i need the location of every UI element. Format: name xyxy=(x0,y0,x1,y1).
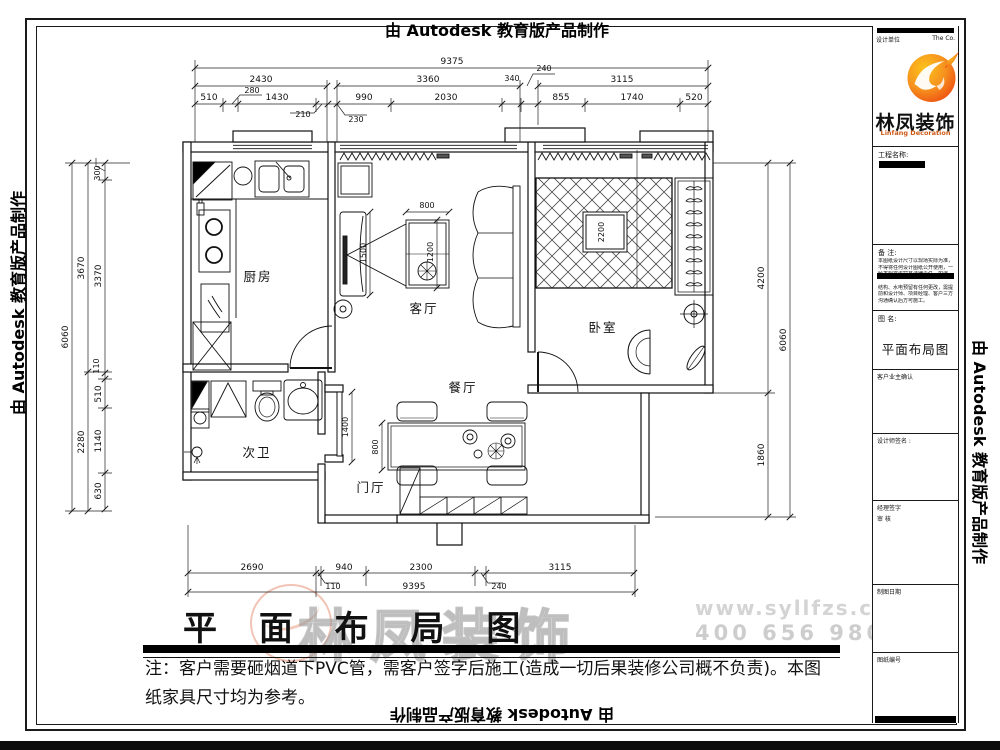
room-label-dining: 餐厅 xyxy=(448,380,477,395)
radiator-lines xyxy=(340,153,710,160)
dim-3115-bottom: 3115 xyxy=(549,563,572,573)
dim-800-table: 800 xyxy=(419,201,434,210)
dim-1860: 1860 xyxy=(757,443,767,466)
notes-line: 沟通确认后方可施工。 xyxy=(873,298,958,305)
room-label-living: 客厅 xyxy=(409,301,438,316)
kitchen-fixtures xyxy=(191,161,328,370)
dim-855: 855 xyxy=(552,93,569,103)
notes-line: 本图纸设计尺寸以现场实际为准， xyxy=(873,258,958,265)
dim-940: 940 xyxy=(335,563,352,573)
room-label-bath: 次卫 xyxy=(242,445,271,460)
dim-3115-top: 3115 xyxy=(611,75,634,85)
dim-3360: 3360 xyxy=(417,75,440,85)
dim-110-left: 110 xyxy=(92,358,101,373)
draw-date-label: 制图日期 xyxy=(873,585,958,596)
manager-sign-label: 经理签字 xyxy=(873,501,958,512)
project-name-redacted xyxy=(879,161,925,168)
notes-label: 备 注: xyxy=(873,245,958,258)
dim-240-bottom: 240 xyxy=(491,582,506,591)
review-label: 审 核 xyxy=(873,512,958,523)
dim-9395: 9395 xyxy=(403,582,426,592)
dim-510: 510 xyxy=(200,93,217,103)
dim-2300: 2300 xyxy=(410,563,433,573)
dim-240-top: 240 xyxy=(536,64,551,73)
room-label-kitchen: 厨房 xyxy=(243,269,272,284)
dim-2690: 2690 xyxy=(241,563,264,573)
dim-1740: 1740 xyxy=(621,93,644,103)
dim-3370: 3370 xyxy=(94,264,104,287)
dim-1200: 1200 xyxy=(426,242,435,262)
autodesk-stamp-top: 由 Autodesk 教育版产品制作 xyxy=(385,17,609,41)
dim-1500: 1500 xyxy=(359,243,368,263)
dim-3670: 3670 xyxy=(77,256,87,279)
autodesk-stamp-right: 由 Autodesk 教育版产品制作 xyxy=(969,340,993,564)
dim-2200: 2200 xyxy=(597,222,606,242)
title-block-top-bar xyxy=(877,28,954,33)
dim-9375: 9375 xyxy=(441,57,464,67)
dim-2280: 2280 xyxy=(77,430,87,453)
dim-990: 990 xyxy=(355,93,372,103)
dim-300: 300 xyxy=(93,165,102,180)
room-label-foyer: 门厅 xyxy=(356,480,385,495)
bedroom-furniture xyxy=(536,150,713,374)
dim-4200: 4200 xyxy=(757,266,767,289)
notes-line: 前和设计师、项目经理、客户三方 xyxy=(873,291,958,298)
designer-sign-label: 设计师签名 : xyxy=(873,434,958,445)
title-block-bottom-bar xyxy=(875,716,956,723)
client-confirm-label: 客户业主确认 xyxy=(873,370,958,381)
designer-unit-label: 设计单位 xyxy=(876,35,900,44)
room-labels: 厨房 客厅 卧室 餐厅 次卫 门厅 xyxy=(242,269,617,495)
dim-1400: 1400 xyxy=(341,417,350,437)
sheet-number-label: 图纸编号 xyxy=(873,653,958,664)
dim-630: 630 xyxy=(94,482,104,499)
dim-800-dining: 800 xyxy=(371,439,380,454)
drawing-name-value: 平面布局图 xyxy=(873,339,958,358)
drawing-name-label: 图 名: xyxy=(873,311,958,324)
brand-name-en: Linfang Decoration xyxy=(873,129,958,137)
title-block: 设计单位 The Co. 林凤装饰 Linfang Decoration 工程名… xyxy=(872,26,959,723)
dim-230: 230 xyxy=(348,115,363,124)
dim-340: 340 xyxy=(504,74,519,83)
drawing-sheet: 由 Autodesk 教育版产品制作 由 Autodesk 教育版产品制作 由 … xyxy=(0,0,1000,750)
note-line-1: 注：客户需要砸烟道下PVC管，需客户签字后施工(造成一切后果装修公司概不负责)。… xyxy=(145,655,885,684)
dim-6060-right: 6060 xyxy=(779,328,789,351)
dining-furniture xyxy=(388,402,527,514)
dim-210: 210 xyxy=(295,110,310,119)
notes-line: 结构、水电预留有任何更改，需提 xyxy=(873,278,958,292)
room-label-bedroom: 卧室 xyxy=(588,320,617,335)
autodesk-stamp-bottom: 由 Autodesk 教育版产品制作 xyxy=(390,704,614,728)
dim-110-bottom: 110 xyxy=(325,582,340,591)
dim-1140: 1140 xyxy=(94,429,104,452)
notes-redacted xyxy=(877,273,954,279)
dim-2430: 2430 xyxy=(250,75,273,85)
linfeng-logo-icon xyxy=(890,50,975,104)
autodesk-stamp-left: 由 Autodesk 教育版产品制作 xyxy=(5,191,29,415)
sheet-title: 平 面 布 局 图 xyxy=(183,601,535,650)
dim-2030: 2030 xyxy=(435,93,458,103)
dim-510-left: 510 xyxy=(94,385,104,402)
project-name-label: 工程名称: xyxy=(873,147,958,160)
dim-6060-left: 6060 xyxy=(61,325,71,348)
dim-280: 280 xyxy=(244,86,259,95)
company-label: The Co. xyxy=(932,35,955,44)
dim-1430: 1430 xyxy=(266,93,289,103)
dim-520: 520 xyxy=(685,93,702,103)
bottom-black-band xyxy=(0,741,1000,750)
